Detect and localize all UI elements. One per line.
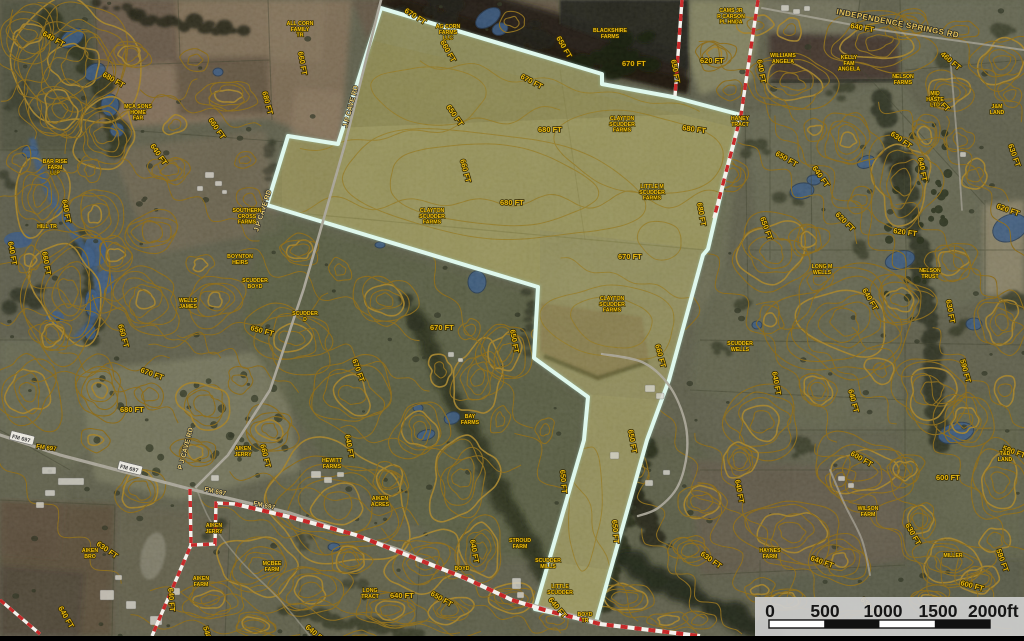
svg-text:0: 0	[765, 601, 775, 621]
svg-text:2000ft: 2000ft	[968, 601, 1019, 621]
svg-text:1500: 1500	[919, 601, 958, 621]
svg-text:1000: 1000	[864, 601, 903, 621]
svg-text:500: 500	[810, 601, 839, 621]
